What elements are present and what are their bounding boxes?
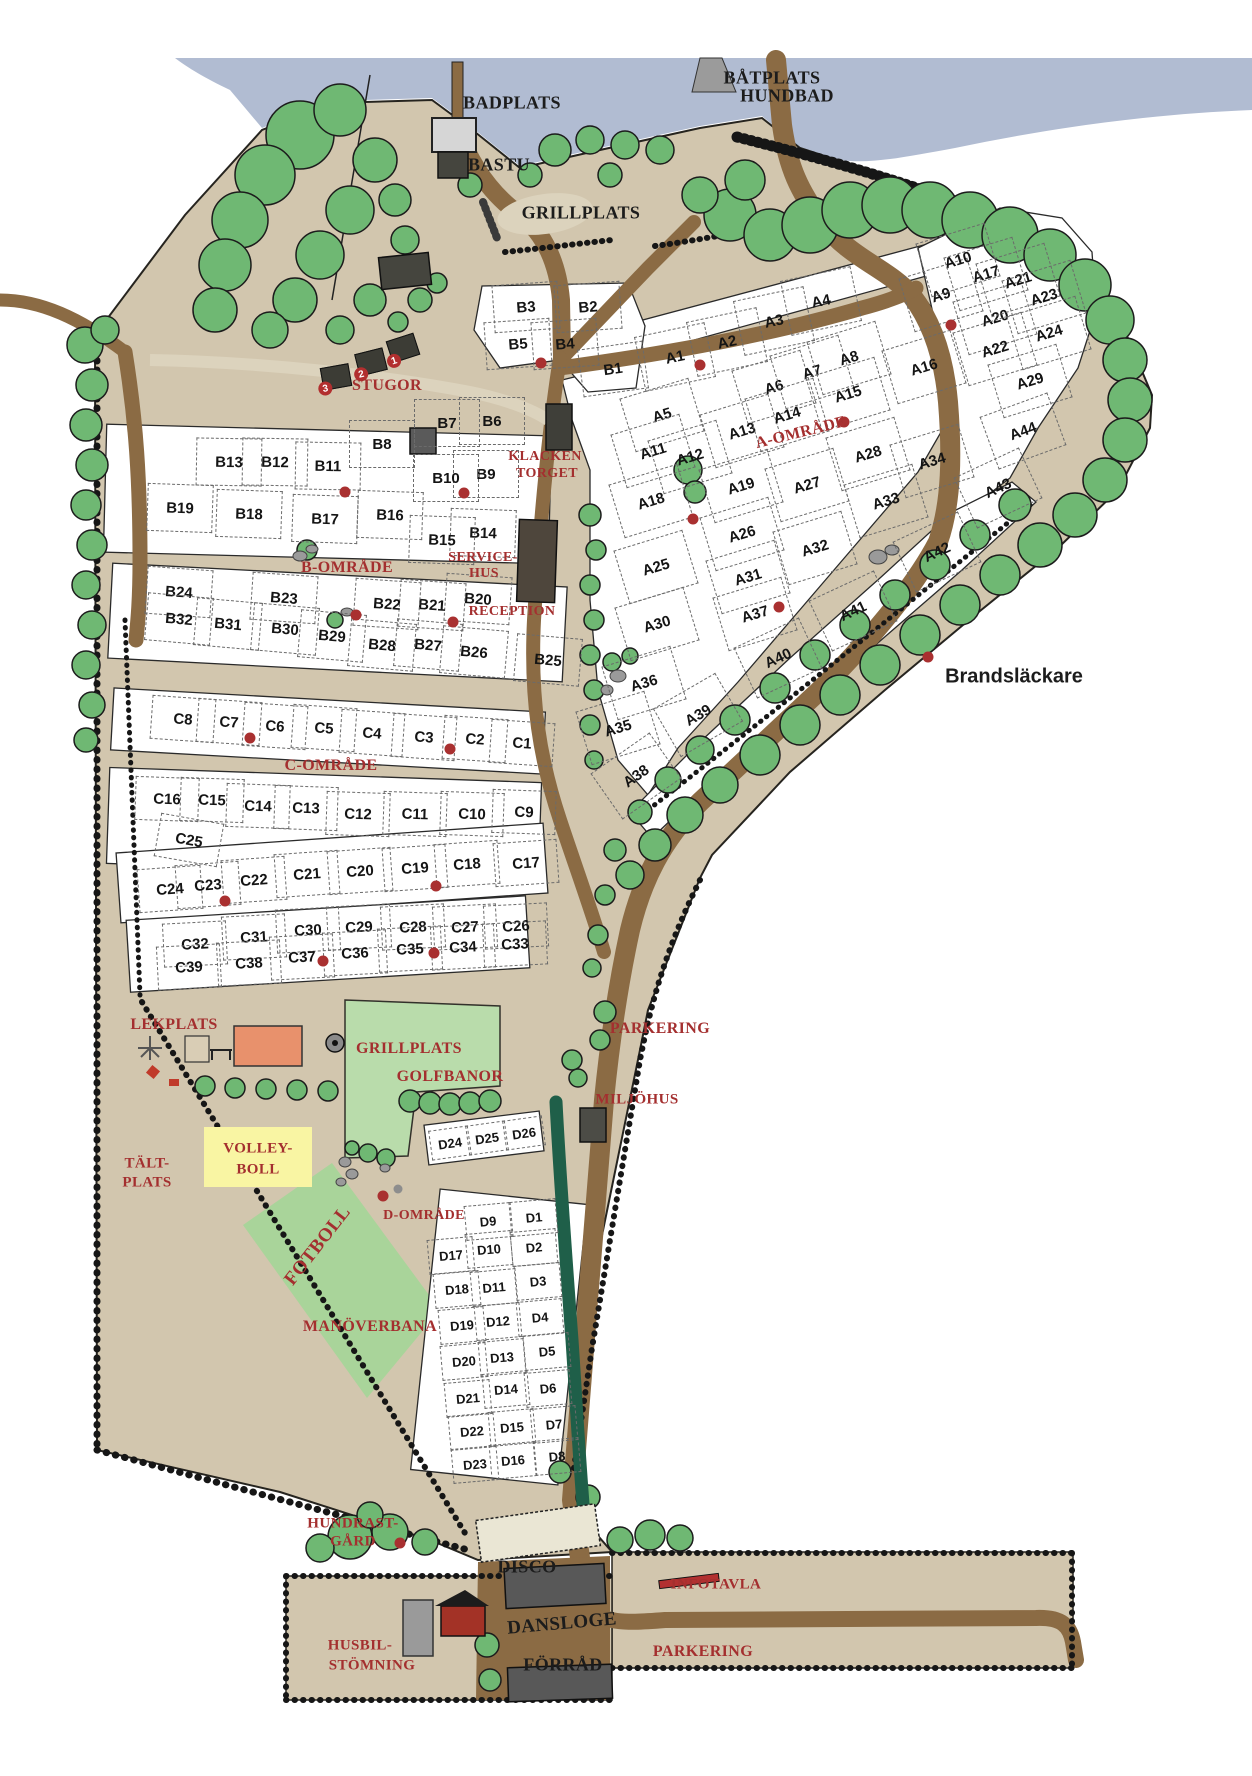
label-a-omr-de: A-OMRÅDE [754, 413, 849, 453]
label-reception: RECEPTION [469, 604, 556, 620]
label-parkering: PARKERING [610, 1020, 710, 1038]
label-hus: HUS [469, 566, 499, 582]
label-disco: DISCO [497, 1557, 556, 1578]
label-klacken: KLACKEN [508, 449, 582, 465]
label-milj-hus: MILJÖHUS [595, 1092, 678, 1109]
label-dansloge: DANSLOGE [506, 1608, 617, 1639]
label-c-omr-de: C-OMRÅDE [285, 757, 378, 775]
campsite-map: A1A2A3A4A5A6A7A8A9A10A11A12A13A14A15A16A… [0, 0, 1252, 1776]
label-badplats: BADPLATS [463, 93, 561, 114]
facility-labels: BADPLATSBÅTPLATSHUNDBADBASTUGRILLPLATSST… [0, 0, 1252, 1776]
label-stugor: STUGOR [352, 377, 422, 395]
label-f-rr-d: FÖRRÅD [523, 1655, 602, 1676]
label-hundrast-: HUNDRAST- [307, 1516, 398, 1533]
label-torget: TORGET [516, 466, 578, 482]
label-g-rd: GÅRD [330, 1534, 376, 1551]
label-boll: BOLL [236, 1162, 279, 1179]
label-grillplats: GRILLPLATS [356, 1040, 462, 1058]
label-volley-: VOLLEY- [223, 1141, 292, 1158]
label-d-omr-de: D-OMRÅDE [383, 1208, 465, 1224]
label-lekplats: LEKPLATS [130, 1016, 217, 1034]
label-bastu: BASTU [468, 155, 530, 176]
label-service-: SERVICE- [448, 550, 518, 566]
label-man-verbana: MANÖVERBANA [303, 1318, 437, 1336]
label-brandsl-ckare: Brandsläckare [945, 666, 1083, 689]
label-b-tplats: BÅTPLATS [724, 68, 821, 89]
label-st-mning: STÖMNING [329, 1658, 416, 1675]
label-parkering: PARKERING [653, 1643, 753, 1661]
label-hundbad: HUNDBAD [740, 86, 834, 107]
label-t-lt-: TÄLT- [124, 1156, 169, 1173]
label-husbil-: HUSBIL- [328, 1638, 393, 1655]
label-grillplats: GRILLPLATS [522, 203, 641, 224]
label-infotavla: INFOTAVLA [671, 1577, 762, 1594]
label-plats: PLATS [122, 1175, 171, 1192]
label-golfbanor: GOLFBANOR [397, 1068, 504, 1086]
label-fotboll: FOTBOLL [280, 1202, 356, 1290]
label-b-omr-de: B-OMRÅDE [301, 559, 393, 577]
